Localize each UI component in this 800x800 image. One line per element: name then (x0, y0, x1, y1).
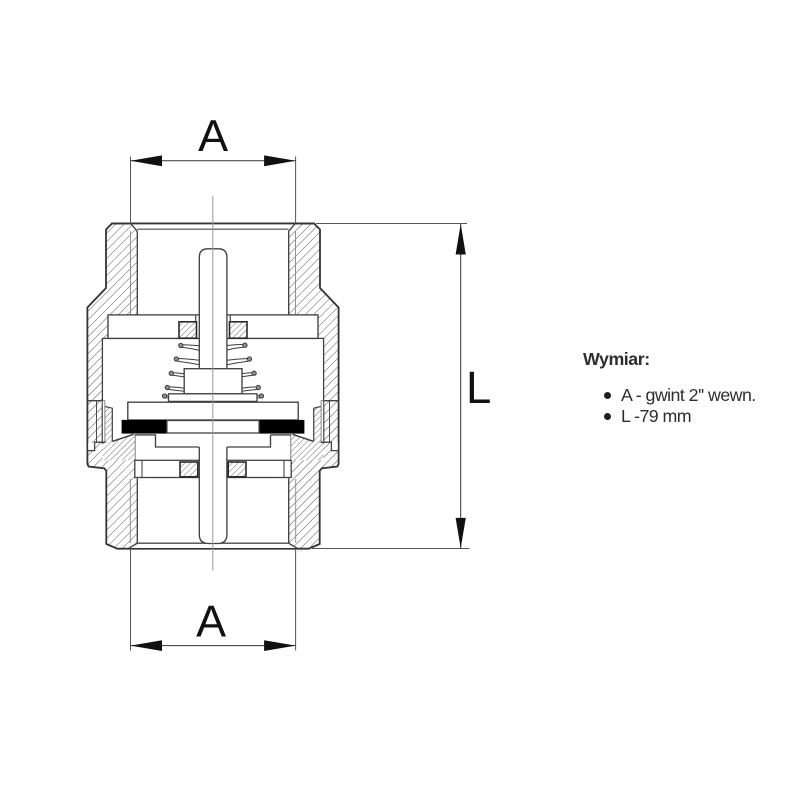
svg-text:A: A (198, 112, 228, 161)
svg-text:L: L (466, 362, 491, 413)
svg-text:A: A (196, 597, 226, 646)
